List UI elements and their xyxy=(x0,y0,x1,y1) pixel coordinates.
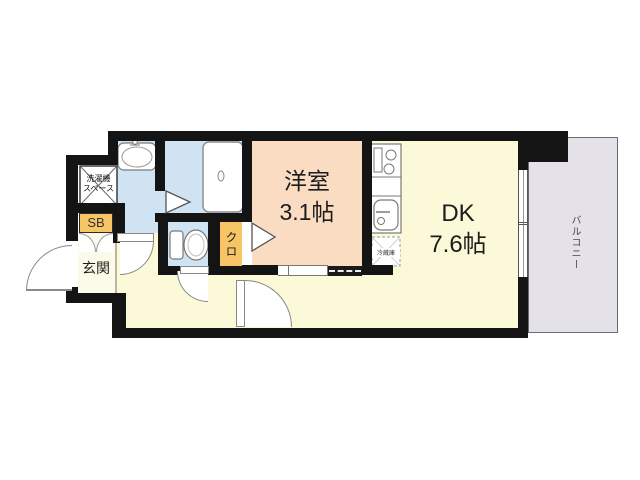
dk-size: 7.6帖 xyxy=(398,229,518,260)
laundry-line1: 洗濯機 xyxy=(79,174,118,184)
fridge-label: 冷蔵庫 xyxy=(372,248,400,257)
bedroom-size: 3.1帖 xyxy=(250,197,364,228)
dk-label: DK 7.6帖 xyxy=(398,198,518,260)
bedroom-name: 洋室 xyxy=(250,166,364,197)
dk-name: DK xyxy=(398,198,518,229)
bathroom-folding-door-icon xyxy=(166,191,190,213)
bedroom-label: 洋室 3.1帖 xyxy=(250,166,364,228)
laundry-line2: スペース xyxy=(79,184,118,194)
balcony-label: バルコニー xyxy=(566,205,582,280)
laundry-label: 洗濯機 スペース xyxy=(79,174,118,194)
closet-label: クロ xyxy=(222,226,240,264)
floorplan: 洋室 3.1帖 DK 7.6帖 玄関 SB クロ 洗濯機 スペース 冷蔵庫 バル… xyxy=(0,0,640,480)
folding-door-icons xyxy=(0,0,640,480)
shoebox-label: SB xyxy=(79,215,113,230)
genkan-label: 玄関 xyxy=(76,258,116,278)
